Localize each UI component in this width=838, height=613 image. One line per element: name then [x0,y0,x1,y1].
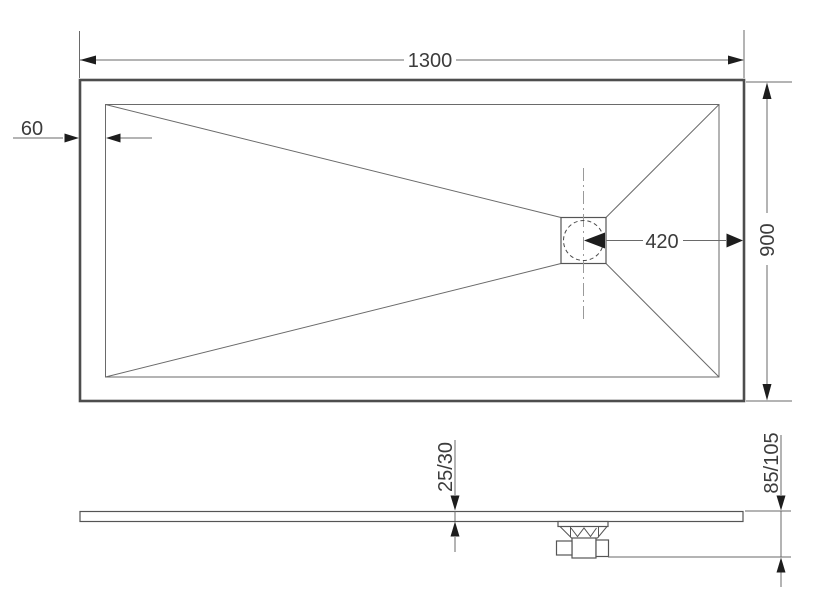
slope-line-bottom-left [106,264,562,378]
slope-line-bottom-right [606,264,719,378]
dim-width-arrow-left [80,56,96,65]
trap-outlet-right [596,540,609,557]
waste-grate-zigzag [571,528,597,537]
dim-drain-offset-arrow-right [727,234,744,248]
dim-border: 60 [13,118,152,143]
dim-height-arrow-bottom [777,558,786,573]
dim-depth-arrow-top [763,83,772,100]
dim-thickness-arrow-bottom [451,522,460,537]
dim-thickness-label: 25/30 [435,442,457,492]
waste-flange [558,522,608,527]
slope-line-top-left [106,105,562,218]
tray-section-slab [80,512,743,522]
dim-width: 1300 [80,30,745,78]
dim-border-arrow-left [65,134,80,143]
trap-inlet-left [557,541,573,555]
dim-depth: 900 [746,82,792,401]
dim-drain-offset-label: 420 [645,231,678,253]
trap-body [572,538,596,558]
dim-width-arrow-right [728,56,744,65]
dim-width-label: 1300 [408,50,453,72]
waste-trap [557,522,609,559]
dim-depth-label: 900 [757,223,779,256]
dim-height: 85/105 [608,432,791,587]
section-view [80,512,743,559]
shower-tray-technical-drawing: 1300 60 420 900 [0,0,838,613]
dim-border-label: 60 [21,118,43,140]
drawing-svg: 1300 60 420 900 [0,0,838,613]
slope-line-top-right [606,105,719,218]
dim-thickness-arrow-top [451,496,460,511]
dim-border-arrow-right [106,134,121,143]
dim-height-label: 85/105 [761,432,783,493]
dim-thickness: 25/30 [435,440,460,552]
dim-depth-arrow-bottom [763,384,772,401]
dim-height-arrow-top [777,496,786,511]
